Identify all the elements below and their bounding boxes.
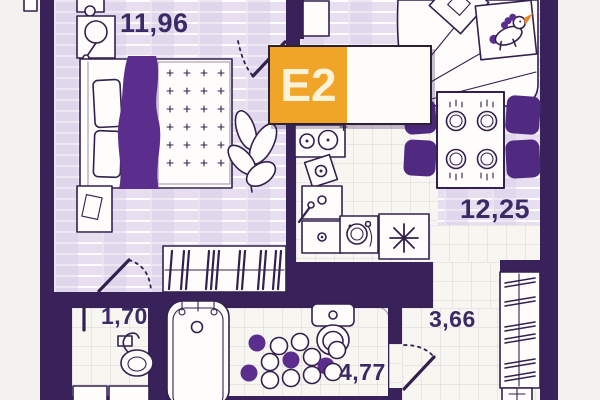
bedroom-floor	[54, 0, 286, 292]
hallway-area-label: 3,66	[429, 308, 476, 331]
unit-type-badge: E2	[268, 45, 432, 125]
floor-plan: 11,96 12,25 1,70 4,77 3,66 E2	[0, 0, 600, 400]
unit-type-blank	[347, 47, 430, 123]
kitchen-floor	[296, 125, 438, 262]
bedroom-area-label: 11,96	[120, 10, 189, 37]
wall-box-icon	[24, 0, 37, 11]
closet-area-label: 1,70	[101, 305, 148, 328]
bathroom-area-label: 4,77	[339, 361, 386, 384]
passage-floor	[430, 225, 540, 262]
wardrobe-nook-wall	[500, 260, 540, 273]
bathroom-doorway	[389, 344, 402, 388]
kitchen-living-area-label: 12,25	[460, 196, 530, 223]
unit-type-code: E2	[270, 47, 347, 123]
